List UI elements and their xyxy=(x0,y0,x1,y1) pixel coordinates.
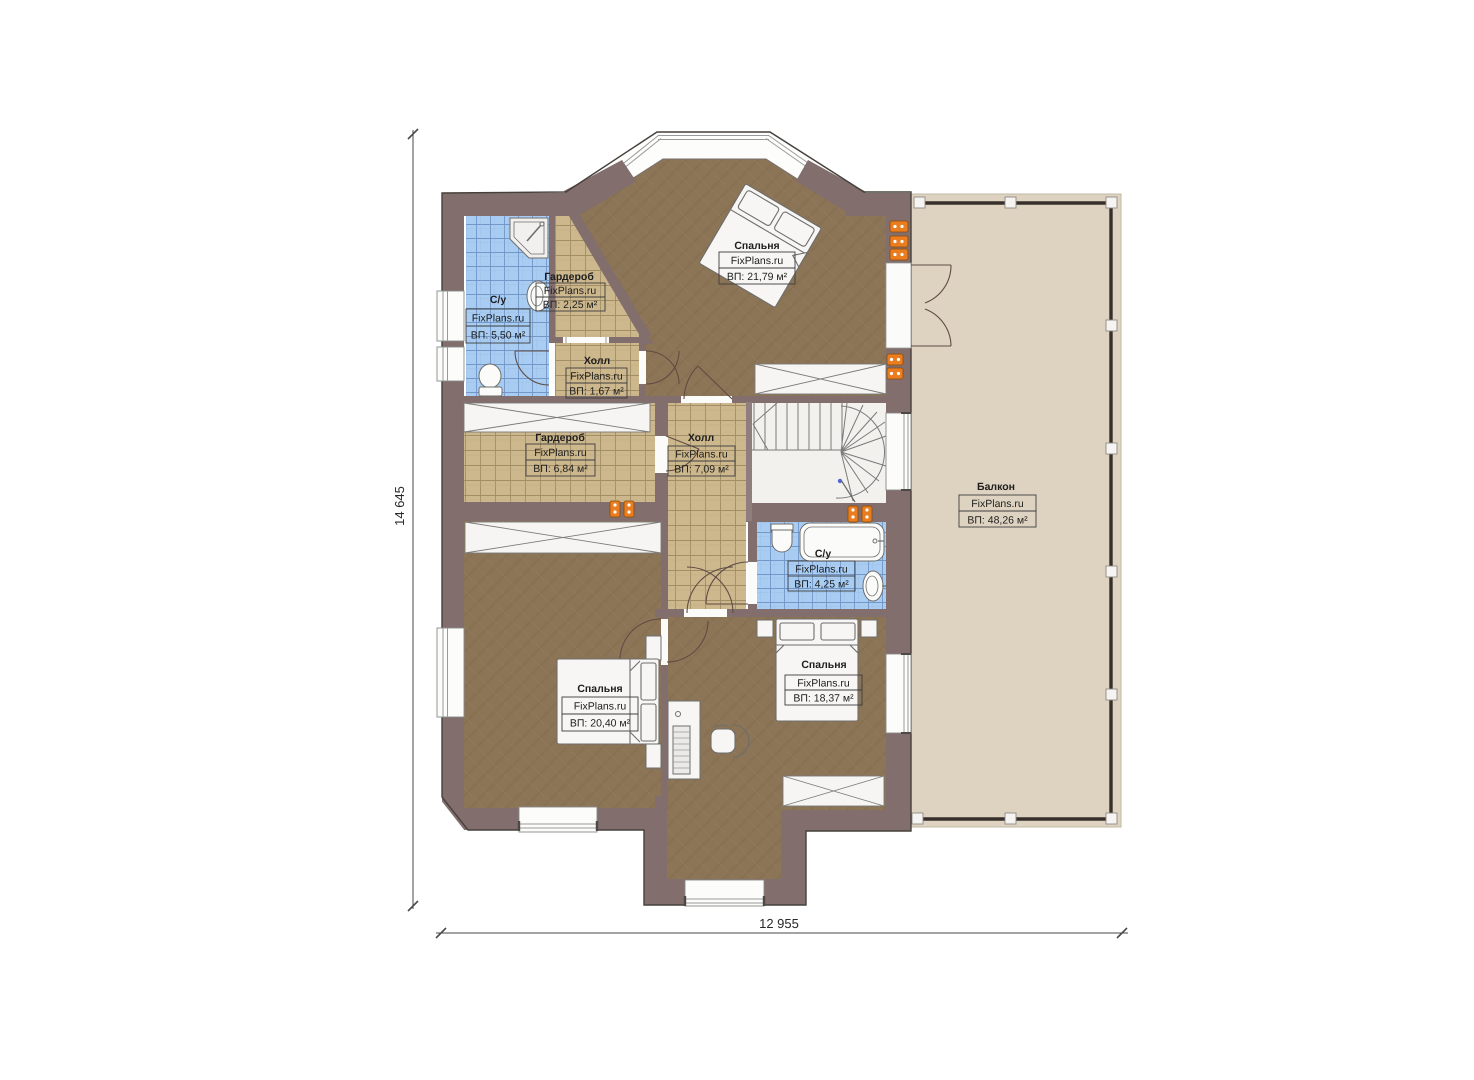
svg-text:FixPlans.ru: FixPlans.ru xyxy=(534,447,587,459)
svg-text:FixPlans.ru: FixPlans.ru xyxy=(971,498,1024,510)
svg-text:С/у: С/у xyxy=(490,294,507,306)
svg-text:Гардероб: Гардероб xyxy=(544,271,594,283)
svg-text:ВП: 2,25 м²: ВП: 2,25 м² xyxy=(543,299,598,311)
svg-text:ВП: 4,25 м²: ВП: 4,25 м² xyxy=(794,579,849,591)
svg-text:FixPlans.ru: FixPlans.ru xyxy=(544,285,597,297)
svg-text:ВП: 7,09 м²: ВП: 7,09 м² xyxy=(674,464,729,476)
svg-text:Холл: Холл xyxy=(584,355,610,367)
svg-text:ВП: 21,79 м²: ВП: 21,79 м² xyxy=(727,271,788,283)
svg-text:Гардероб: Гардероб xyxy=(535,432,585,444)
svg-text:ВП: 5,50 м²: ВП: 5,50 м² xyxy=(471,330,526,342)
svg-text:ВП: 18,37 м²: ВП: 18,37 м² xyxy=(793,693,854,705)
svg-text:ВП: 48,26 м²: ВП: 48,26 м² xyxy=(967,515,1028,527)
svg-text:Холл: Холл xyxy=(688,432,714,444)
svg-text:FixPlans.ru: FixPlans.ru xyxy=(472,313,525,325)
svg-text:FixPlans.ru: FixPlans.ru xyxy=(795,564,848,576)
svg-text:ВП: 1,67 м²: ВП: 1,67 м² xyxy=(569,386,624,398)
svg-text:FixPlans.ru: FixPlans.ru xyxy=(797,678,850,690)
svg-text:FixPlans.ru: FixPlans.ru xyxy=(675,449,728,461)
svg-text:С/у: С/у xyxy=(815,548,832,560)
svg-text:Балкон: Балкон xyxy=(977,481,1015,493)
svg-text:14 645: 14 645 xyxy=(392,486,407,526)
svg-text:FixPlans.ru: FixPlans.ru xyxy=(570,371,623,383)
svg-text:FixPlans.ru: FixPlans.ru xyxy=(574,701,627,713)
svg-text:12 955: 12 955 xyxy=(759,916,799,931)
svg-text:ВП: 6,84 м²: ВП: 6,84 м² xyxy=(533,463,588,475)
svg-text:Спальня: Спальня xyxy=(801,659,846,671)
svg-text:Спальня: Спальня xyxy=(577,683,622,695)
svg-text:ВП: 20,40 м²: ВП: 20,40 м² xyxy=(570,718,631,730)
svg-text:Спальня: Спальня xyxy=(734,240,779,252)
svg-text:FixPlans.ru: FixPlans.ru xyxy=(731,255,784,267)
